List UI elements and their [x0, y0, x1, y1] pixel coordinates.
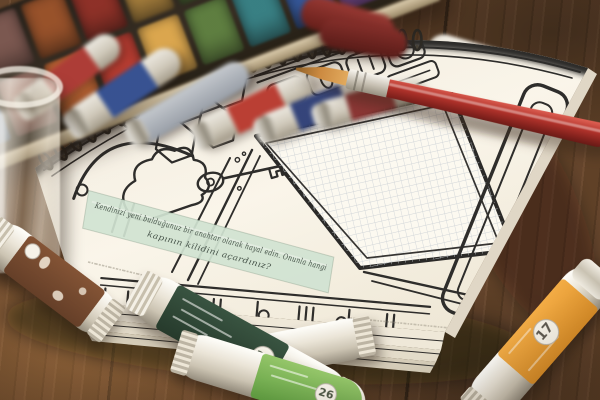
photo-scene: Kendinizi yeni bulduğunuz bir anahtar ol…: [0, 0, 600, 400]
tube-number-badge: [22, 240, 44, 262]
tube-number-badge: 26: [312, 380, 339, 400]
brush-ferrule: [345, 69, 392, 98]
tube-number-badge: 17: [527, 314, 564, 351]
brush-bristles: [295, 59, 351, 86]
